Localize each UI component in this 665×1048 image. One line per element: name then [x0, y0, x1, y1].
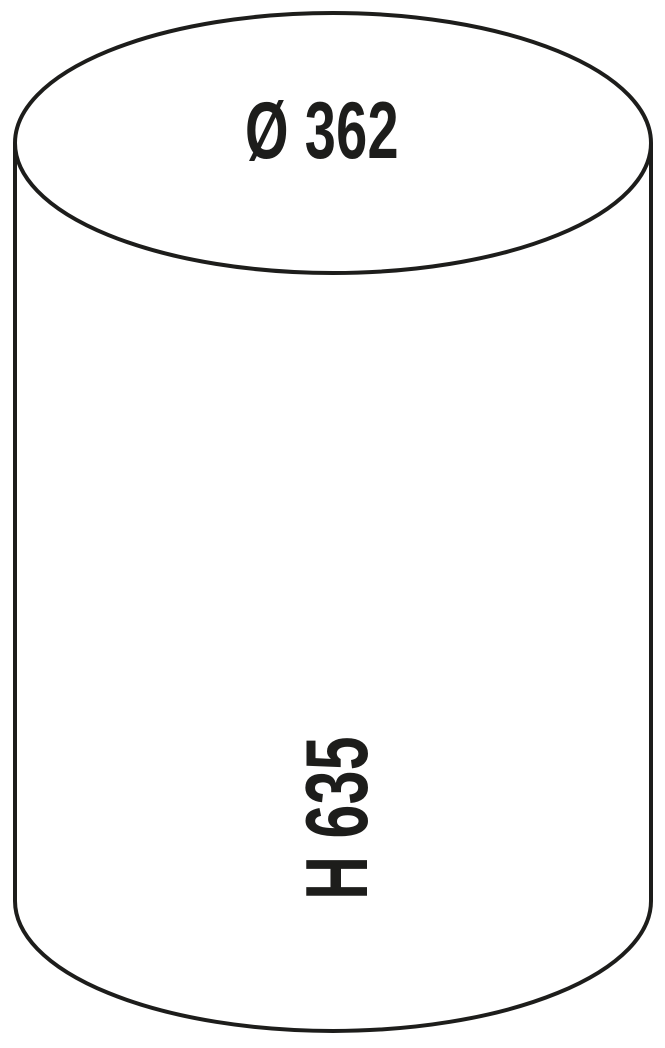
diameter-label: Ø 362: [245, 85, 399, 176]
cylinder-bottom-arc: [15, 901, 651, 1031]
cylinder-drawing: Ø 362 H 635: [0, 0, 665, 1048]
cylinder-diagram: Ø 362 H 635: [0, 0, 665, 1048]
height-label: H 635: [289, 736, 387, 900]
